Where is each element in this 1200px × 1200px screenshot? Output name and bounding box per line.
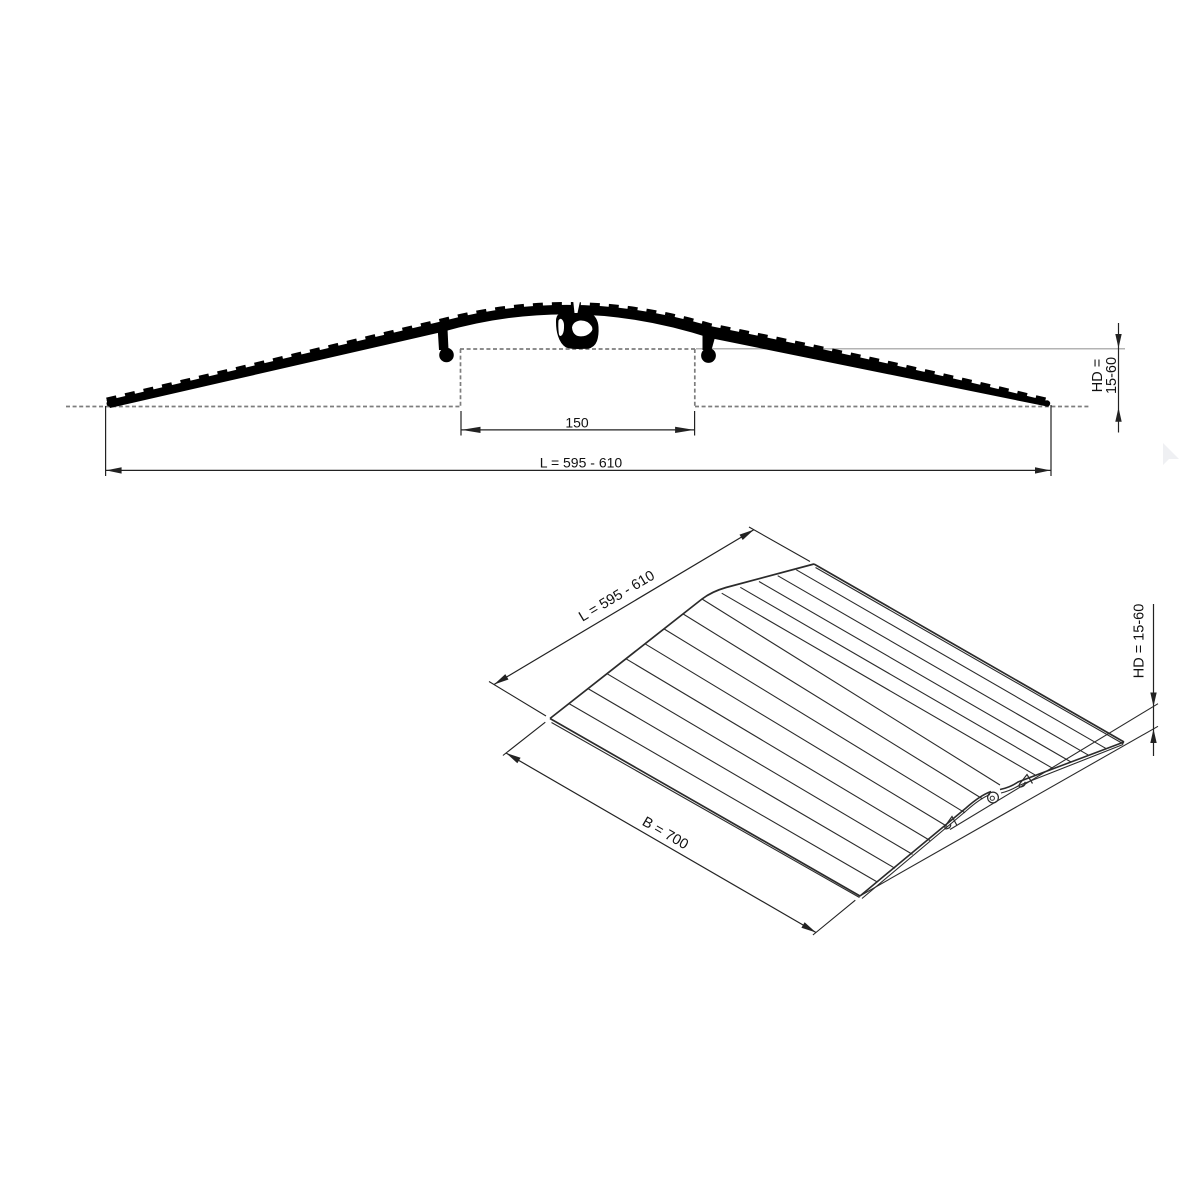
svg-text:L = 595 - 610: L = 595 - 610 — [540, 454, 623, 470]
svg-text:HD = 15-60: HD = 15-60 — [1132, 604, 1148, 679]
svg-text:15-60: 15-60 — [1104, 357, 1120, 394]
svg-text:150: 150 — [565, 415, 589, 431]
